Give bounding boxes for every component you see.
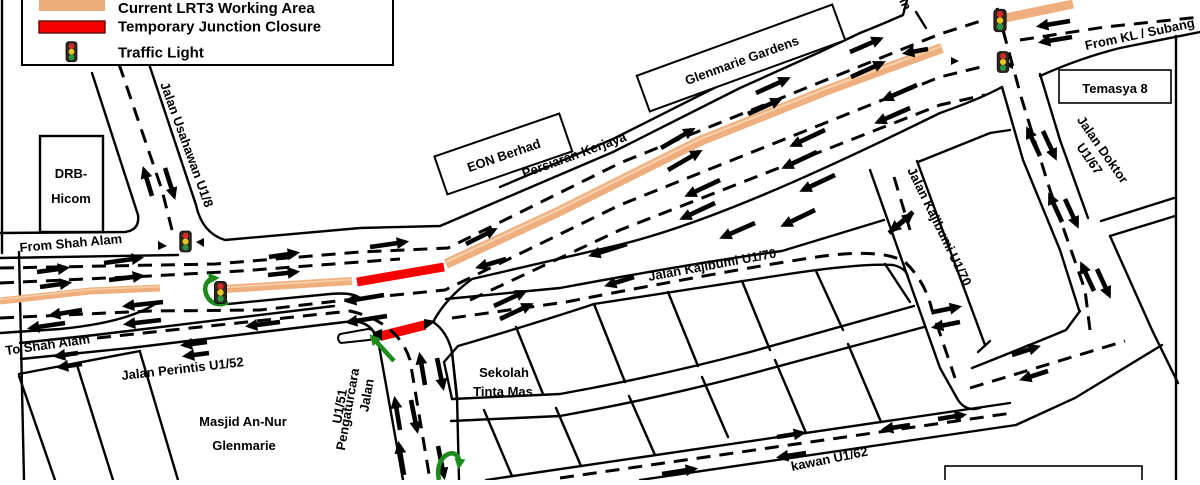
svg-text:Temasya 8: Temasya 8 (1082, 81, 1148, 96)
svg-text:Traffic Light: Traffic Light (118, 45, 204, 62)
svg-text:Temporary Junction Closure: Temporary Junction Closure (118, 19, 321, 36)
svg-text:Glenmarie: Glenmarie (212, 438, 276, 453)
svg-text:Tinta Mas: Tinta Mas (473, 384, 533, 399)
svg-text:Masjid An-Nur: Masjid An-Nur (199, 414, 287, 429)
svg-text:DRB-: DRB- (55, 166, 88, 181)
svg-text:Sekolah: Sekolah (479, 365, 529, 380)
svg-text:Hicom: Hicom (51, 191, 91, 206)
svg-text:Current LRT3 Working Area: Current LRT3 Working Area (118, 0, 315, 17)
